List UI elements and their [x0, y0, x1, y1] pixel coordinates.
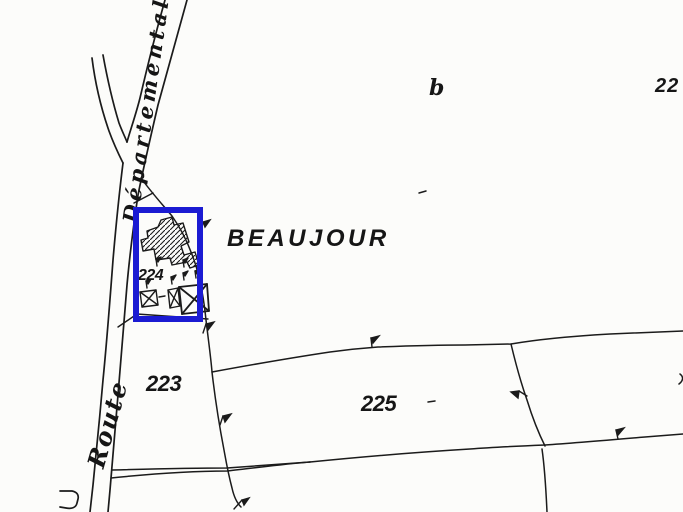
cadastral-map: BEAUJOUR 224 223 225 22 b Départementale… [0, 0, 683, 512]
clipped-edge-glyph [679, 374, 683, 384]
road-stub [60, 491, 78, 508]
parcel-label-225: 225 [361, 393, 396, 415]
place-name-label: BEAUJOUR [227, 227, 390, 251]
highlight-rectangle [133, 207, 203, 322]
section-letter-b: b [429, 77, 444, 99]
misc-marks [419, 191, 683, 402]
parcel-label-223: 223 [146, 373, 181, 395]
parcel-label-22-clipped: 22 [655, 76, 679, 96]
